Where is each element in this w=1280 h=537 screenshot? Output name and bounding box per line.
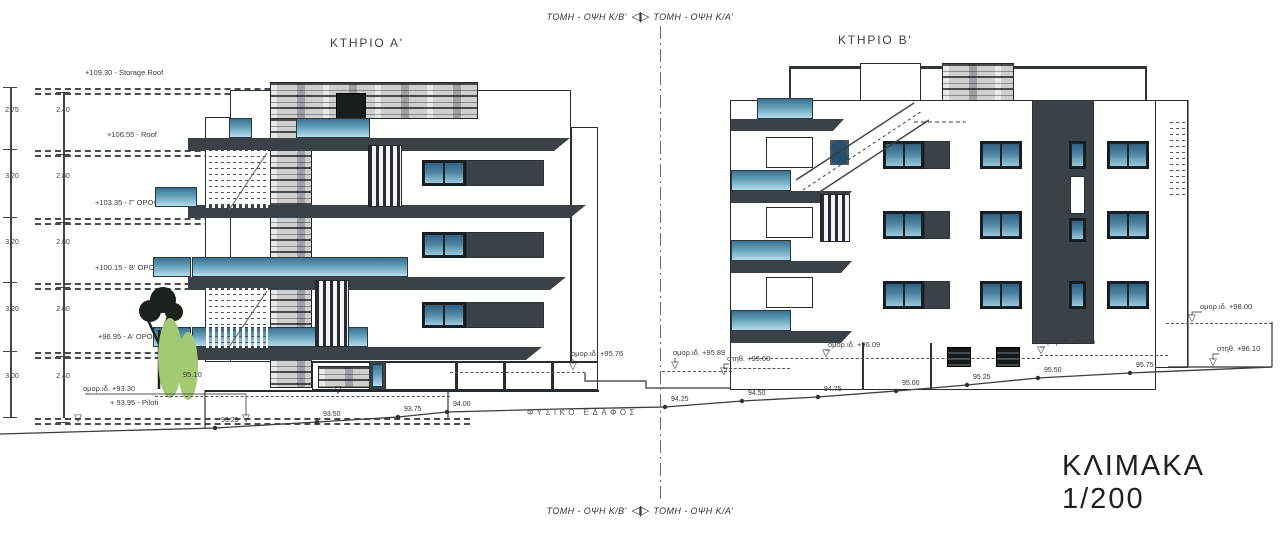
section-title-top-right: ΤΟΜΗ - ΟΨΗ Κ/Α' xyxy=(653,12,733,22)
spot-level-label: στηθ. +96.10 xyxy=(1217,344,1260,353)
spot-level-label: ομορ.ιδ. +95.76 xyxy=(571,349,623,358)
window-band xyxy=(466,232,544,258)
window-band xyxy=(466,302,544,328)
window xyxy=(1107,141,1149,169)
piloti-column xyxy=(551,362,554,390)
survey-point-label: 95.75 xyxy=(1136,362,1154,369)
window xyxy=(1107,281,1149,309)
window xyxy=(980,281,1022,309)
level-dash-line xyxy=(35,418,470,420)
window xyxy=(883,281,924,309)
level-dash xyxy=(155,396,450,397)
glass-railing xyxy=(296,118,370,138)
window xyxy=(980,211,1022,239)
building-b-slab xyxy=(731,119,844,131)
level-triangle-icon: ▽ xyxy=(334,386,342,395)
louver-screen xyxy=(368,145,402,207)
ladder-hatch xyxy=(1167,122,1187,200)
spot-level-label: ομορ.ιδ. +93.30 xyxy=(83,384,135,393)
glass-panel xyxy=(229,118,252,138)
recessed-opening xyxy=(766,207,813,238)
band-window xyxy=(1069,141,1086,169)
survey-point-label: 95.25 xyxy=(973,374,991,381)
louver-screen xyxy=(315,280,349,347)
spot-level-label: ομορ.ιδ. +96.09 xyxy=(828,340,880,349)
window-band xyxy=(924,281,950,309)
elevation-drawing: +109.30 - Storage Roof+106.55 - Roof+103… xyxy=(0,0,1280,537)
survey-point-label: 93.25 xyxy=(221,417,239,424)
level-dash xyxy=(1040,355,1168,356)
window-band xyxy=(924,141,950,169)
section-title-top-left: ΤΟΜΗ - ΟΨΗ Κ/Β' xyxy=(547,12,627,22)
survey-point xyxy=(213,426,217,430)
glass-railing xyxy=(192,257,408,277)
window xyxy=(422,160,466,186)
stair-railing-hatch xyxy=(206,150,268,208)
building-b-roof-stone xyxy=(942,63,1014,101)
louver-screen xyxy=(820,194,850,242)
section-cut-icon: ◁|▷ xyxy=(632,10,649,23)
dim-tick xyxy=(56,422,70,423)
section-title-top: ΤΟΜΗ - ΟΨΗ Κ/Β' ◁|▷ ΤΟΜΗ - ΟΨΗ Κ/Α' xyxy=(0,10,1280,23)
piloti-stone-wall xyxy=(318,366,370,388)
building-a-baseline xyxy=(205,390,599,392)
level-dash xyxy=(1166,323,1272,324)
scale-label: ΚΛΙΜΑΚΑ 1/200 xyxy=(1062,450,1280,516)
survey-point-label: 94.75 xyxy=(824,386,842,393)
inner-dim-line xyxy=(63,93,65,418)
building-b-roof-volume xyxy=(860,63,921,101)
window xyxy=(422,302,466,328)
building-a-title: ΚΤΗΡΙΟ Α' xyxy=(330,36,404,50)
building-b-slab xyxy=(731,261,852,273)
level-dash-line xyxy=(35,423,470,425)
building-a-stone-band xyxy=(270,82,478,119)
level-dash xyxy=(750,358,1040,359)
survey-point xyxy=(445,410,449,414)
recessed-opening xyxy=(766,137,813,168)
glass-panel xyxy=(155,187,197,207)
window xyxy=(883,141,924,169)
stair-railing-hatch xyxy=(206,288,268,348)
level-triangle-icon: ▽ xyxy=(1209,358,1217,367)
dimension-outer: 3.20 xyxy=(0,239,24,246)
outer-dim-line xyxy=(10,88,12,418)
dimension-outer: 2.75 xyxy=(0,107,24,114)
level-triangle-icon: ▽ xyxy=(569,362,577,371)
level-triangle-icon: ▽ xyxy=(822,349,830,358)
level-triangle-icon: ▽ xyxy=(671,361,679,370)
glass-panel xyxy=(153,327,191,347)
level-triangle-icon: ▽ xyxy=(1188,314,1196,323)
building-b-title: ΚΤΗΡΙΟ Β' xyxy=(838,33,913,47)
glass-panel xyxy=(153,257,191,277)
glass-railing xyxy=(731,240,791,261)
level-triangle-icon: ▽ xyxy=(74,414,82,423)
window xyxy=(883,211,924,239)
piloti-column xyxy=(455,362,458,390)
piloti-pier xyxy=(930,343,932,390)
level-label: + 93.95 - Piloti xyxy=(110,398,158,407)
band-slot-window xyxy=(1070,176,1085,214)
piloti-vent xyxy=(947,347,971,367)
survey-point-label: 93.50 xyxy=(323,411,341,418)
parapet-post xyxy=(1145,66,1147,103)
piloti-vent xyxy=(996,347,1020,367)
spot-level-label: στηθ. +95.60 xyxy=(727,354,770,363)
glass-railing xyxy=(731,310,791,331)
section-title-bottom-right: ΤΟΜΗ - ΟΨΗ Κ/Α' xyxy=(653,506,733,516)
survey-point-label: 94.50 xyxy=(748,390,766,397)
building-a-right-annex xyxy=(571,127,598,362)
spot-level-label: ομορ.ιδ. +95.89 xyxy=(673,348,725,357)
piloti-pier xyxy=(862,343,864,390)
section-title-bottom-left: ΤΟΜΗ - ΟΨΗ Κ/Β' xyxy=(547,506,627,516)
level-dash xyxy=(450,372,585,373)
window xyxy=(980,141,1022,169)
level-triangle-icon: ▽ xyxy=(720,367,728,376)
section-cut-line xyxy=(660,26,661,500)
building-a-slab-a xyxy=(188,347,542,360)
window-band xyxy=(924,211,950,239)
natural-ground-label: ΦΥΣΙΚΟ ΕΔΑΦΟΣ xyxy=(527,408,638,417)
spot-level-label: ομορ.ιδ. +98.00 xyxy=(1200,302,1252,311)
window xyxy=(422,232,466,258)
section-cut-icon: ◁|▷ xyxy=(632,504,649,517)
dimension-outer: 3.20 xyxy=(0,173,24,180)
level-triangle-icon: ▽ xyxy=(242,414,250,423)
survey-point-label: 95.50 xyxy=(1044,367,1062,374)
band-window xyxy=(1069,218,1086,242)
level-dash xyxy=(724,368,790,369)
window-band xyxy=(466,160,544,186)
window xyxy=(1107,211,1149,239)
dimension-outer: 3.20 xyxy=(0,306,24,313)
survey-point xyxy=(663,405,667,409)
level-label: +109.30 - Storage Roof xyxy=(85,68,163,77)
survey-point xyxy=(740,399,744,403)
survey-point-label: 93.75 xyxy=(404,406,422,413)
glass-railing xyxy=(731,170,791,191)
glass-railing xyxy=(757,98,813,119)
piloti-column xyxy=(503,362,506,390)
survey-point-label: 94.00 xyxy=(453,401,471,408)
recessed-opening xyxy=(766,277,813,308)
survey-point-label: 94.25 xyxy=(671,396,689,403)
band-window xyxy=(1069,281,1086,309)
stair-window xyxy=(830,140,849,165)
spot-level-label: ομορ.ιδ. +96.26 xyxy=(1043,337,1095,346)
dimension-outer: 3.00 xyxy=(0,373,24,380)
survey-point xyxy=(816,395,820,399)
survey-point-label: 95.00 xyxy=(902,380,920,387)
piloti-door-glass xyxy=(372,364,383,387)
spot-level-label: 95.10 xyxy=(183,370,202,379)
level-triangle-icon: ▽ xyxy=(1037,346,1045,355)
level-label: +106.55 - Roof xyxy=(107,130,157,139)
